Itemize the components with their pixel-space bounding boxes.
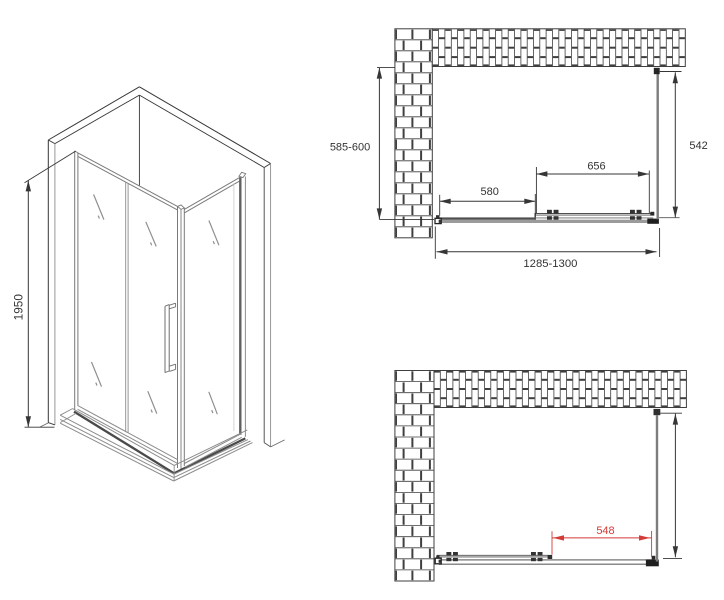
svg-text:1285-1300: 1285-1300	[523, 258, 577, 270]
svg-text:1950: 1950	[11, 294, 25, 321]
svg-text:548: 548	[596, 525, 614, 537]
svg-text:542: 542	[689, 140, 707, 152]
svg-text:656: 656	[587, 160, 605, 172]
svg-text:585-600: 585-600	[330, 141, 370, 153]
svg-text:580: 580	[481, 186, 499, 198]
